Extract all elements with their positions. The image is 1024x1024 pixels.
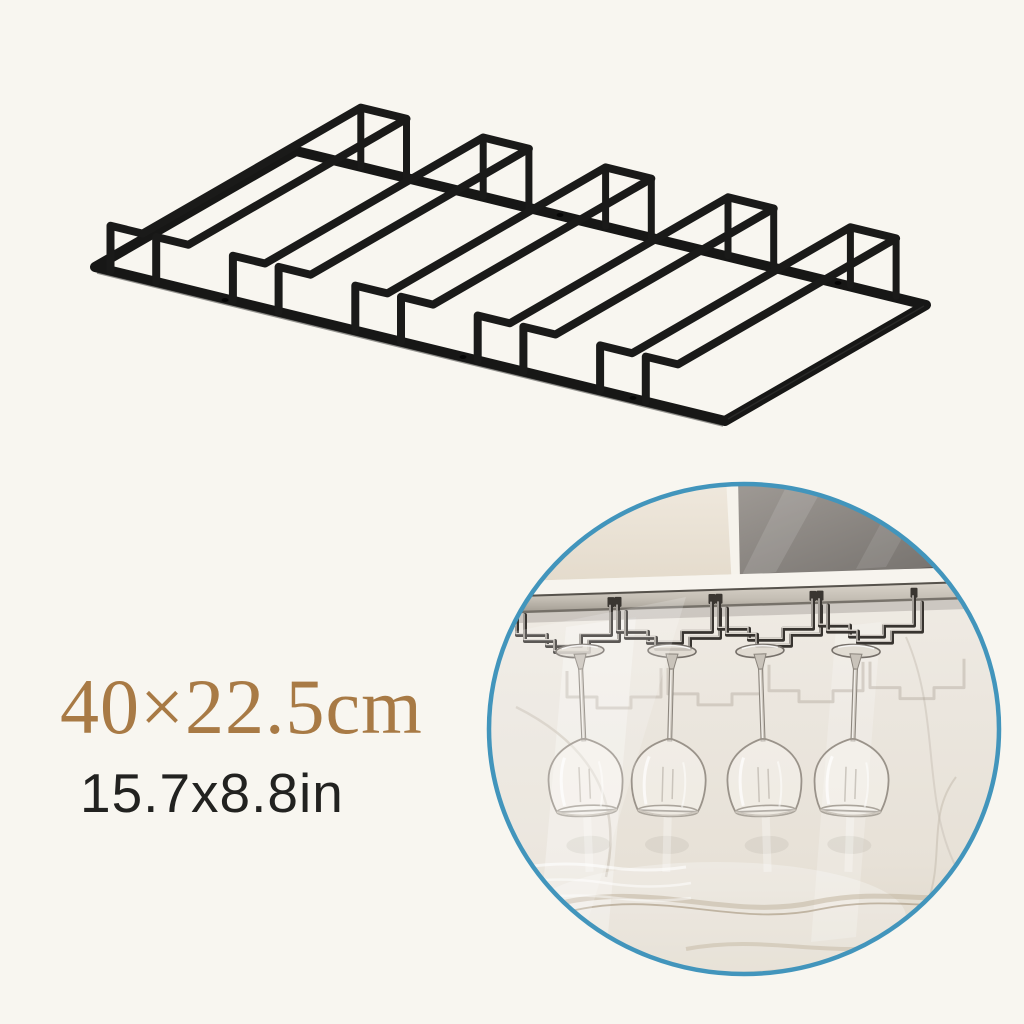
dimension-metric-label: 40×22.5cm — [60, 668, 423, 746]
inset-lifestyle-photo — [486, 477, 1002, 993]
rack-rails-group — [111, 108, 897, 402]
rack-illustration — [40, 90, 980, 460]
product-photo: 40×22.5cm 15.7x8.8in — [0, 0, 1024, 1024]
dimension-imperial-label: 15.7x8.8in — [80, 766, 344, 821]
